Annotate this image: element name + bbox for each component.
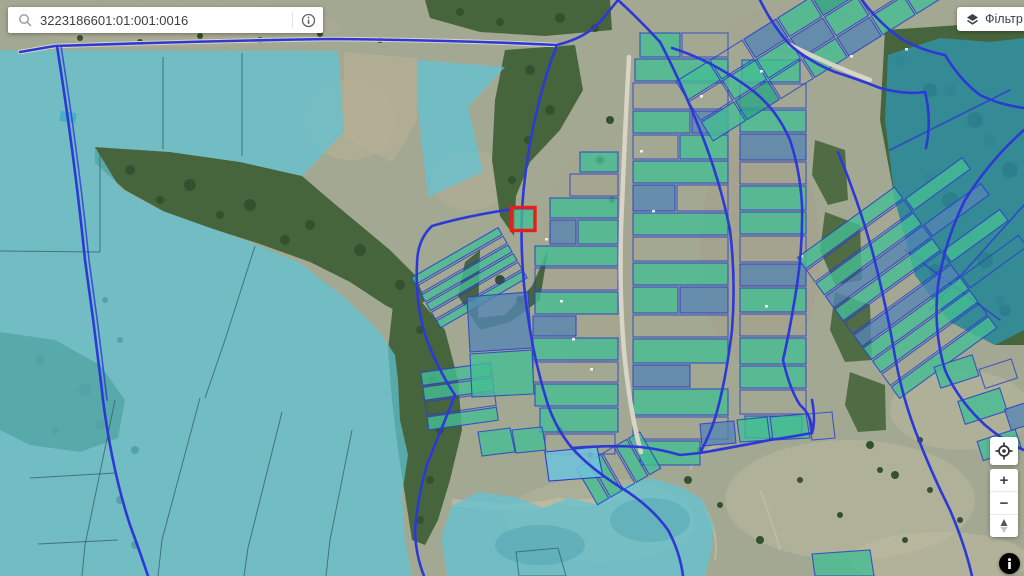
zoom-in-button[interactable]: + — [990, 469, 1018, 492]
satellite-map[interactable] — [0, 0, 1024, 576]
map-info-button[interactable] — [999, 553, 1020, 574]
zoom-out-button[interactable]: − — [990, 492, 1018, 515]
cadastral-map-app: Фільтр + − — [0, 0, 1024, 576]
geolocate-button[interactable] — [990, 437, 1018, 465]
filter-button[interactable]: Фільтр — [957, 7, 1024, 31]
search-icon — [18, 13, 32, 27]
north-needle-icon — [997, 518, 1011, 534]
compass-button[interactable] — [990, 515, 1018, 537]
search-info-icon[interactable] — [293, 7, 323, 33]
filter-button-label: Фільтр — [985, 12, 1023, 26]
cadastral-search-bar — [8, 7, 323, 33]
target-icon — [995, 442, 1013, 460]
layers-icon — [966, 13, 979, 26]
info-icon — [1005, 558, 1014, 569]
zoom-controls: + − — [990, 469, 1018, 537]
search-input[interactable] — [32, 13, 292, 28]
selected-parcel-fill — [513, 209, 534, 230]
